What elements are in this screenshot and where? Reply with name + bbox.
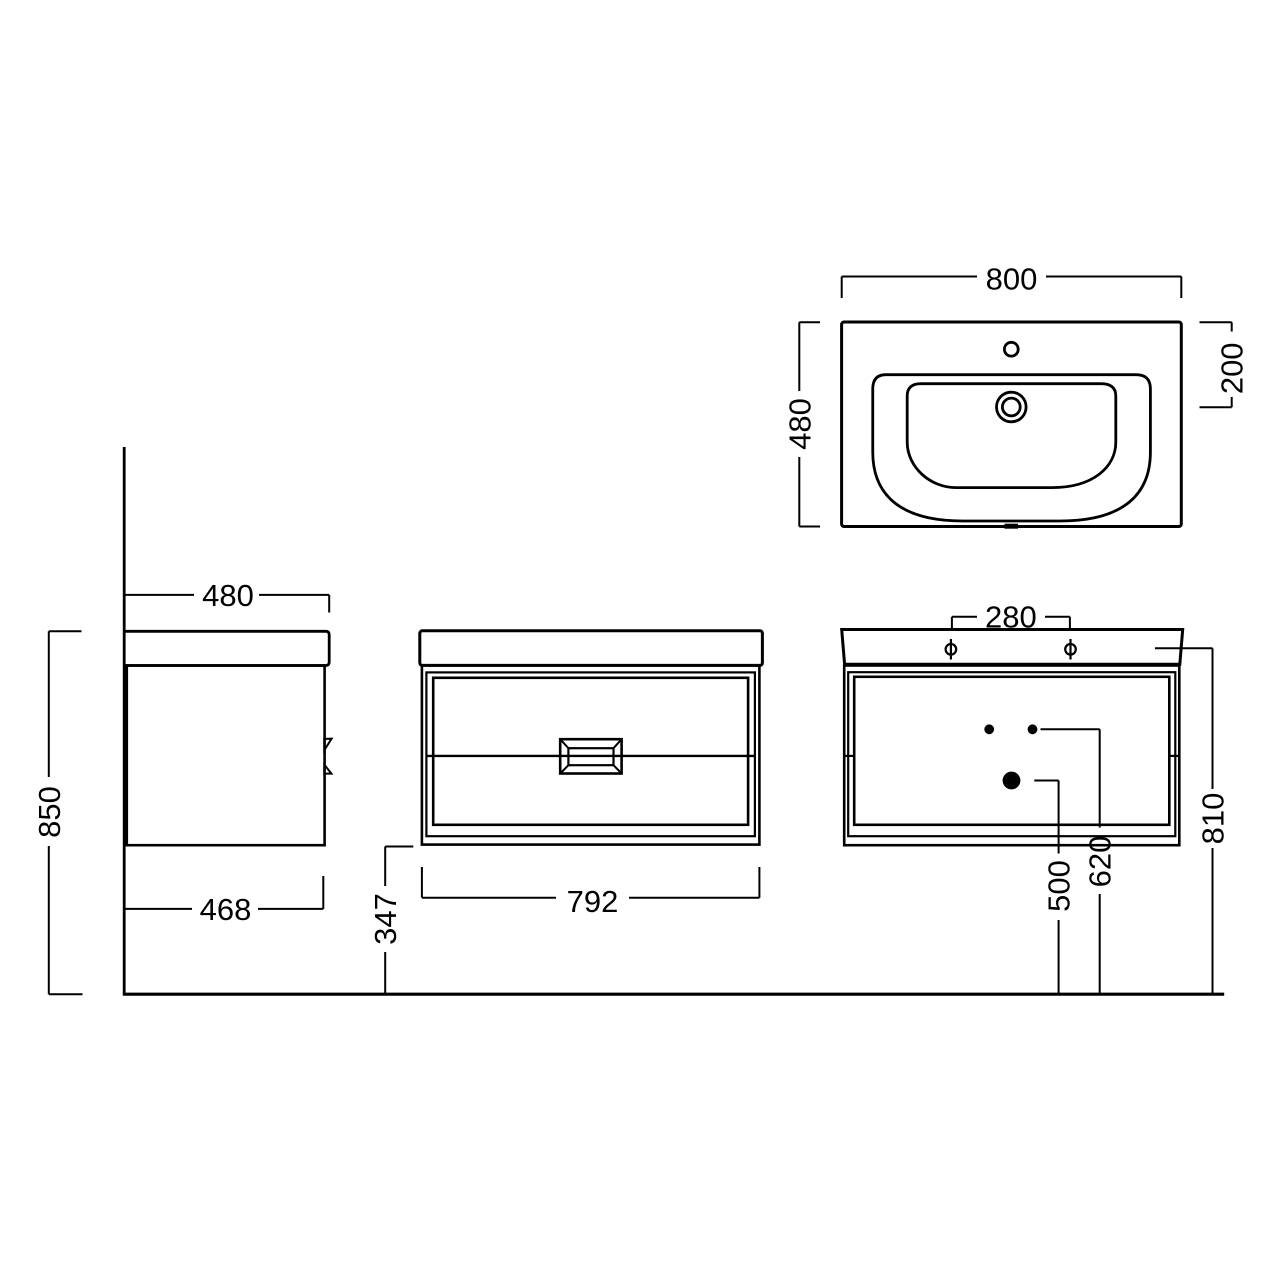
svg-text:850: 850 [32,786,67,838]
svg-text:500: 500 [1042,860,1077,912]
svg-text:810: 810 [1196,793,1231,845]
svg-text:800: 800 [986,262,1038,297]
svg-text:620: 620 [1083,836,1118,888]
svg-text:280: 280 [985,600,1037,635]
svg-text:792: 792 [567,884,619,919]
svg-text:347: 347 [368,893,403,945]
svg-text:200: 200 [1215,342,1250,394]
svg-text:480: 480 [202,578,254,613]
svg-text:480: 480 [782,398,817,450]
svg-text:468: 468 [200,892,252,927]
